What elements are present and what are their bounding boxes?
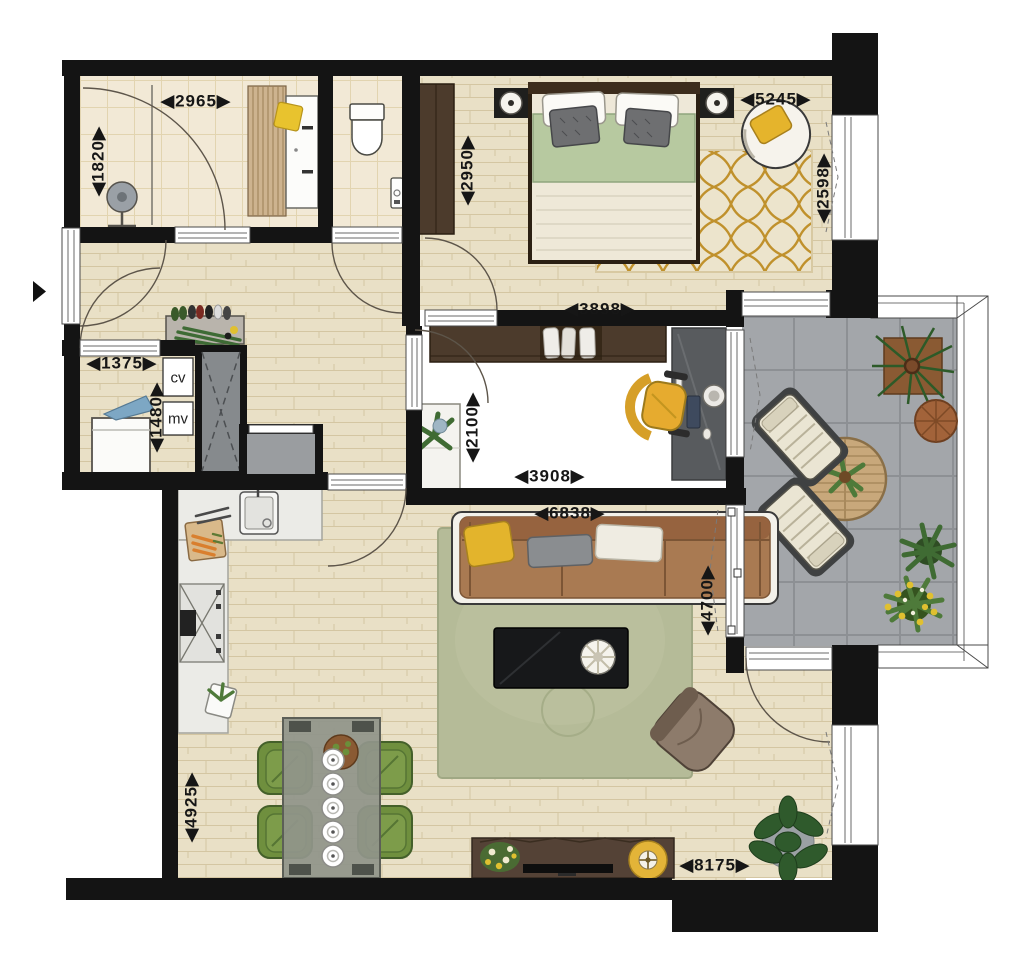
balcony-railing-right — [957, 296, 988, 668]
rattan-pouf — [915, 400, 957, 442]
floor-plan-page: cv mv — [0, 0, 1024, 966]
closet-door — [249, 425, 313, 433]
balcony — [742, 296, 988, 668]
dim-bedroom-width-top: ◀5245▶ — [740, 90, 811, 109]
tv-console — [472, 838, 674, 879]
cushion-gray-left — [549, 106, 600, 148]
balcony-railing-bottom — [878, 645, 988, 668]
living-window — [832, 725, 878, 845]
entrance-arrow — [33, 281, 46, 302]
cushion-gray-right — [624, 108, 672, 147]
dim-utility-depth: ◀1480▶ — [147, 382, 166, 453]
dim-bedroom-width-bottom: ◀3898▶ — [564, 300, 635, 319]
dim-bathroom-width: ◀2965▶ — [160, 92, 231, 111]
dim-bathroom-depth: ◀1820▶ — [89, 126, 108, 197]
tv-stand — [558, 873, 576, 876]
office-wardrobe — [430, 324, 666, 362]
waste-bin-inner — [709, 391, 720, 402]
dim-office-width: ◀3908▶ — [514, 467, 585, 486]
oven — [180, 610, 196, 636]
living-door-frame — [328, 474, 406, 490]
dim-dining-depth: ◀4925▶ — [182, 772, 201, 843]
dim-living-depth: ◀4700▶ — [698, 565, 717, 636]
vanity — [248, 86, 318, 216]
tv — [523, 864, 613, 873]
lamp-left-center — [508, 100, 514, 106]
mv-label: mv — [168, 411, 188, 428]
sofa-pillow-yellow — [463, 521, 515, 568]
closet — [247, 434, 315, 474]
mouse — [703, 429, 711, 440]
office-door-frame — [406, 335, 422, 410]
coffee-table — [494, 628, 628, 688]
dim-bedroom-depth-right: ◀2598▶ — [814, 153, 833, 224]
toilet — [350, 104, 384, 155]
dim-office-depth: ◀2100▶ — [463, 392, 482, 463]
bedroom-balcony-window — [742, 292, 830, 316]
cooktop-hood — [180, 584, 224, 662]
keyboard — [687, 396, 700, 428]
dining-table — [283, 718, 380, 878]
towel — [274, 102, 304, 132]
plates — [322, 749, 344, 867]
dim-entry-width: ◀1375▶ — [86, 354, 157, 373]
dim-bedroom-depth-left: ◀2950▶ — [458, 135, 477, 206]
bedroom-window — [832, 115, 878, 240]
toilet-door-frame — [332, 227, 402, 243]
entry-door-frame — [62, 228, 80, 324]
flower-center — [593, 652, 603, 662]
dim-total-width-bottom: ◀8175▶ — [679, 856, 750, 875]
lamp-right-center — [714, 100, 720, 106]
sideboard-plant-pot — [433, 419, 447, 433]
shoe-accent — [230, 326, 238, 334]
sofa-pillow-white — [595, 524, 663, 561]
bed-headboard — [528, 82, 700, 94]
cv-label: cv — [171, 370, 187, 387]
hand-basin — [391, 178, 403, 208]
dim-living-width: ◀6838▶ — [534, 504, 605, 523]
bedroom-door-frame — [425, 310, 497, 326]
office-balcony-window — [726, 330, 744, 457]
bed — [528, 82, 700, 262]
floor-plan-drawing: cv mv — [0, 0, 1024, 966]
sofa-pillow-gray — [527, 534, 592, 567]
bathroom-door-frame — [175, 227, 250, 243]
